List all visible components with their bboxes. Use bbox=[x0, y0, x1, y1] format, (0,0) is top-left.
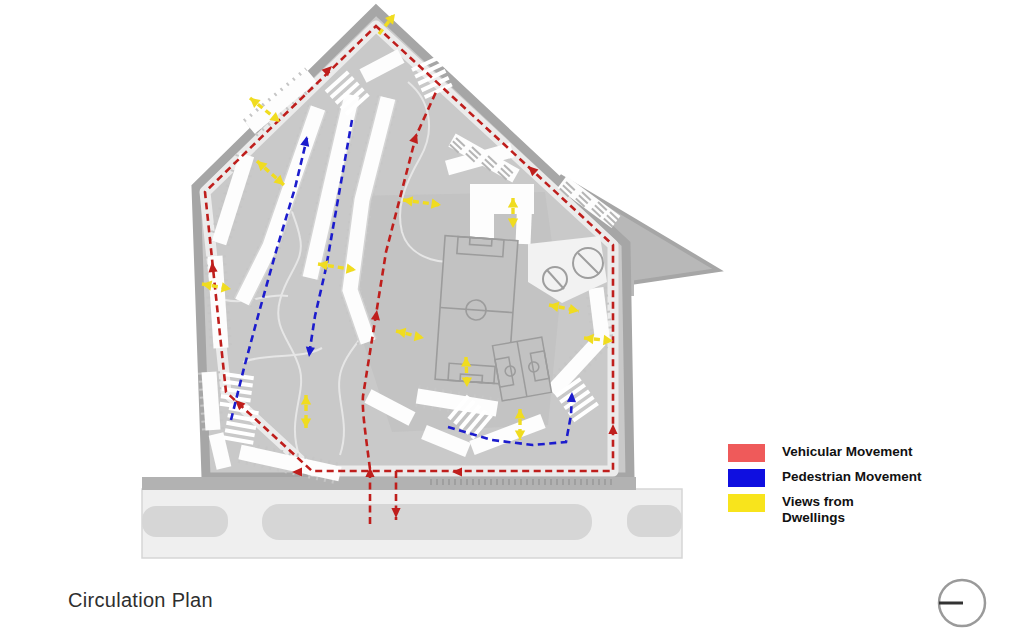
street bbox=[142, 489, 682, 558]
page-title: Circulation Plan bbox=[68, 589, 213, 612]
legend-label: Pedestrian Movement bbox=[782, 469, 932, 485]
road-island bbox=[627, 505, 682, 537]
north-indicator-icon bbox=[936, 577, 990, 631]
circulation-plan-page: Circulation Plan Vehicular Movement Pede… bbox=[0, 0, 1024, 631]
south-wall-band bbox=[142, 477, 636, 490]
legend-item-vehicular: Vehicular Movement bbox=[728, 444, 932, 462]
legend-label: Vehicular Movement bbox=[782, 444, 932, 460]
legend-item-pedestrian: Pedestrian Movement bbox=[728, 469, 932, 487]
vehicular-swatch bbox=[728, 444, 765, 462]
basketball-court bbox=[493, 337, 552, 401]
site-plan-drawing bbox=[0, 0, 1024, 631]
legend-label: Views from Dwellings bbox=[782, 494, 874, 526]
pedestrian-swatch bbox=[728, 469, 765, 487]
views-swatch bbox=[728, 494, 765, 512]
road-island bbox=[142, 506, 228, 537]
legend-item-views: Views from Dwellings bbox=[728, 494, 932, 526]
legend: Vehicular Movement Pedestrian Movement V… bbox=[728, 444, 932, 533]
road-island bbox=[262, 504, 592, 540]
